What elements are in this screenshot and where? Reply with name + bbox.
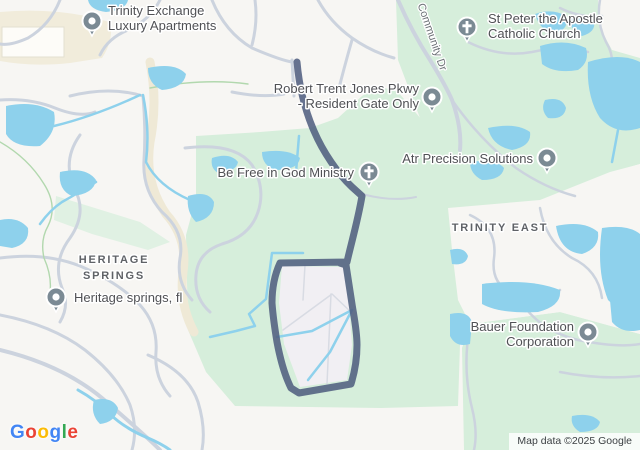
heritage-springs-label-2: SPRINGS (83, 270, 145, 282)
bauer-foundation-label[interactable]: Bauer Foundation (471, 319, 574, 334)
heritage-springs-label: HERITAGE (79, 254, 149, 266)
logo-letter: o (37, 422, 49, 443)
dot-glyph-icon (428, 93, 435, 100)
dot-glyph-icon (584, 328, 591, 335)
dot-glyph-icon (543, 154, 550, 161)
logo-letter: g (50, 422, 62, 443)
map-canvas[interactable]: Trinity Exchange Luxury Apartments St Pe… (0, 0, 640, 450)
map-image[interactable]: Trinity Exchange Luxury Apartments St Pe… (0, 0, 640, 450)
st-peter-label-2[interactable]: Catholic Church (488, 26, 581, 41)
logo-letter: e (67, 422, 78, 443)
be-free-ministry-label[interactable]: Be Free in God Ministry (217, 165, 354, 180)
bauer-foundation-label-2[interactable]: Corporation (506, 334, 574, 349)
heritage-springs-fl-label[interactable]: Heritage springs, fl (74, 290, 182, 305)
logo-letter: o (25, 422, 37, 443)
trinity-east-label: TRINITY EAST (452, 222, 549, 234)
trinity-exchange-label-2[interactable]: Luxury Apartments (108, 18, 217, 33)
map-attribution: Map data ©2025 Google (509, 433, 640, 450)
google-logo[interactable]: Google (10, 422, 78, 444)
st-peter-label[interactable]: St Peter the Apostle (488, 11, 603, 26)
trinity-exchange-label[interactable]: Trinity Exchange (108, 3, 204, 18)
dot-glyph-icon (88, 17, 95, 24)
dot-glyph-icon (52, 293, 59, 300)
building (2, 27, 64, 57)
robert-trent-jones-label-2[interactable]: - Resident Gate Only (298, 96, 420, 111)
atr-precision-label[interactable]: Atr Precision Solutions (402, 151, 533, 166)
robert-trent-jones-label[interactable]: Robert Trent Jones Pkwy (274, 81, 420, 96)
logo-letter: G (10, 422, 25, 443)
